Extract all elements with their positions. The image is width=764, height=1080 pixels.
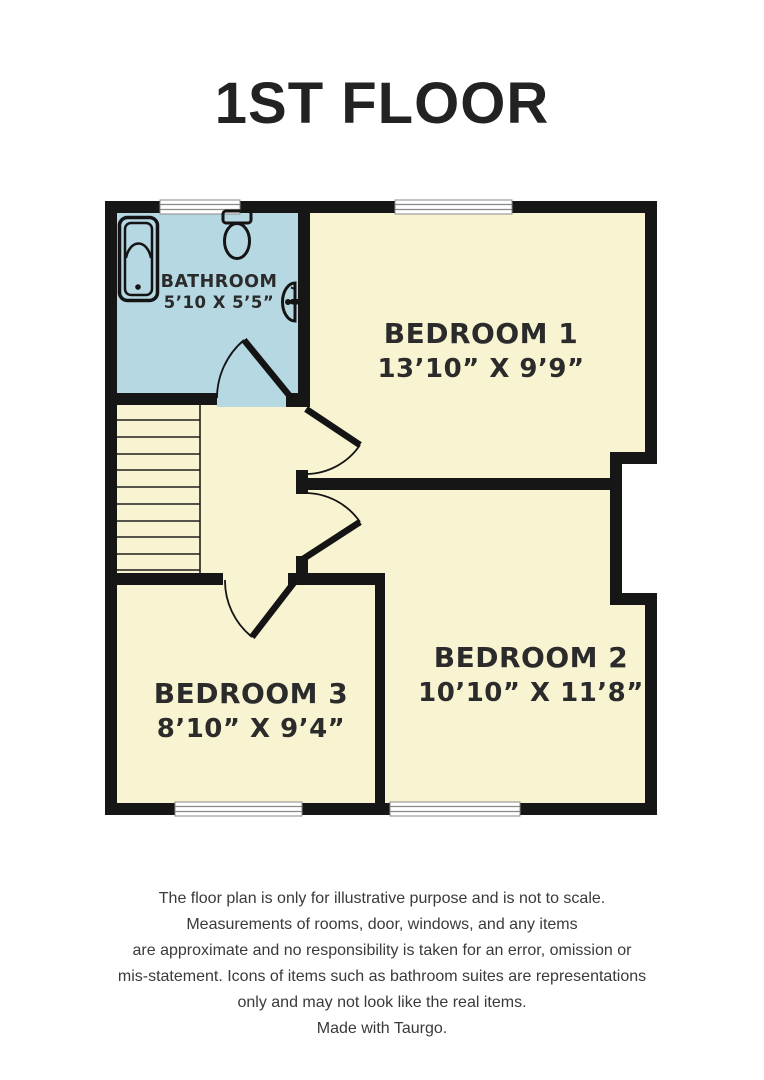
bedroom3-name: BEDROOM 3 bbox=[154, 676, 348, 712]
window-bedroom1 bbox=[395, 200, 512, 214]
bathroom-dims: 5’10 X 5’5” bbox=[161, 293, 278, 313]
floor-plan-page: 1ST FLOOR bbox=[0, 0, 764, 1080]
wall-bathroom-bottom bbox=[105, 393, 217, 405]
bedroom1-dims: 13’10” X 9’9” bbox=[377, 352, 584, 386]
bathroom-label: BATHROOM 5’10 X 5’5” bbox=[161, 272, 278, 313]
bedroom3-dims: 8’10” X 9’4” bbox=[154, 712, 348, 746]
wall-bed2-bed3-divider bbox=[375, 573, 385, 807]
bedroom1-label: BEDROOM 1 13’10” X 9’9” bbox=[377, 316, 584, 386]
wall-bathroom-divider bbox=[298, 201, 310, 407]
disclaimer-line: are approximate and no responsibility is… bbox=[32, 938, 732, 964]
wall-bed3-top-right bbox=[288, 573, 385, 585]
disclaimer: The floor plan is only for illustrative … bbox=[32, 886, 732, 1042]
disclaimer-line: Made with Taurgo. bbox=[32, 1016, 732, 1042]
disclaimer-line: The floor plan is only for illustrative … bbox=[32, 886, 732, 912]
bedroom2-name: BEDROOM 2 bbox=[418, 640, 644, 676]
wall-right-lower bbox=[645, 593, 657, 815]
wall-right-upper bbox=[645, 201, 657, 464]
disclaimer-line: mis-statement. Icons of items such as ba… bbox=[32, 964, 732, 990]
disclaimer-line: Measurements of rooms, door, windows, an… bbox=[32, 912, 732, 938]
bedroom2-label: BEDROOM 2 10’10” X 11’8” bbox=[418, 640, 644, 710]
bedroom1-name: BEDROOM 1 bbox=[377, 316, 584, 352]
wall-bed3-top-left bbox=[105, 573, 223, 585]
wall-left bbox=[105, 201, 117, 815]
window-bedroom3 bbox=[175, 802, 302, 816]
wall-bed1-bed2-divider bbox=[296, 478, 622, 490]
bathroom-name: BATHROOM bbox=[161, 272, 278, 293]
window-bedroom2 bbox=[390, 802, 520, 816]
disclaimer-line: only and may not look like the real item… bbox=[32, 990, 732, 1016]
bedroom3-label: BEDROOM 3 8’10” X 9’4” bbox=[154, 676, 348, 746]
wall-notch-left bbox=[610, 452, 622, 605]
wall-notch-bottom bbox=[610, 593, 657, 605]
bedroom2-dims: 10’10” X 11’8” bbox=[418, 676, 644, 710]
